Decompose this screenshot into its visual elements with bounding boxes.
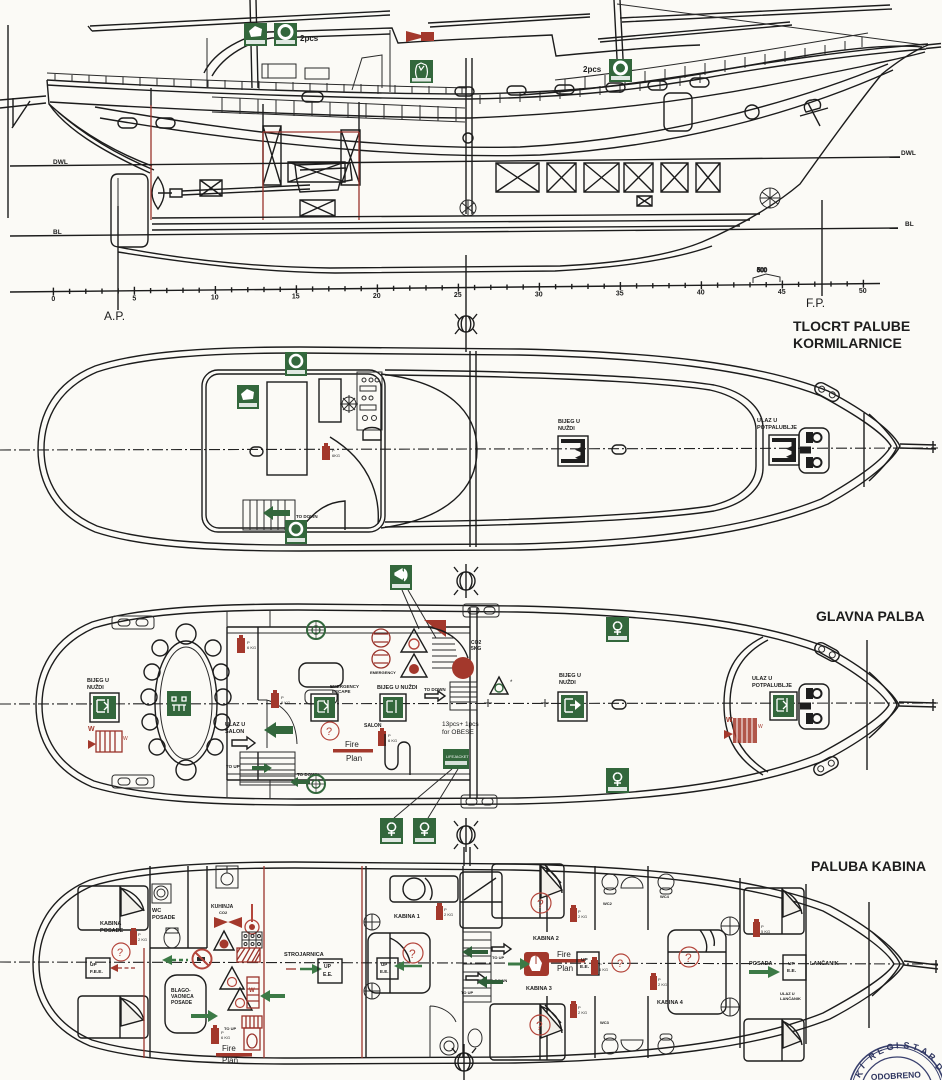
svg-text:SALON: SALON [364, 723, 382, 729]
svg-text:?: ? [537, 897, 544, 911]
svg-text:BL: BL [53, 229, 62, 236]
svg-text:EMERGENCY: EMERGENCY [370, 670, 396, 675]
svg-text:POSADE: POSADE [171, 1000, 193, 1006]
svg-text:TO UP: TO UP [224, 1026, 236, 1031]
svg-text:ODOBRENO: ODOBRENO [871, 1069, 922, 1080]
svg-text:W: W [88, 726, 95, 733]
svg-text:2 KG: 2 KG [658, 982, 667, 987]
svg-text:KABINA: KABINA [100, 921, 121, 927]
svg-text:2 KG: 2 KG [138, 937, 147, 942]
svg-text:BIJEG U: BIJEG U [87, 678, 109, 684]
svg-text:Plan: Plan [222, 1056, 238, 1065]
svg-text:TO DOWN: TO DOWN [424, 687, 446, 692]
svg-text:Fire: Fire [222, 1044, 236, 1053]
svg-text:50: 50 [859, 288, 867, 295]
svg-text:W: W [249, 988, 255, 994]
svg-text:W: W [758, 724, 763, 730]
svg-text:POSADE: POSADE [100, 928, 124, 934]
svg-text:40: 40 [697, 290, 705, 297]
svg-text:NUŽDI: NUŽDI [559, 678, 576, 686]
svg-text:35: 35 [616, 291, 624, 298]
svg-text:2 KG: 2 KG [578, 914, 587, 919]
svg-text:PALUBA KABINA: PALUBA KABINA [811, 858, 926, 874]
svg-text:45: 45 [778, 289, 786, 296]
svg-text:LANČANIK: LANČANIK [810, 960, 839, 967]
svg-text:6 KG: 6 KG [247, 645, 256, 650]
svg-text:for OBESE: for OBESE [442, 729, 474, 736]
svg-text:TLOCRT PALUBE: TLOCRT PALUBE [793, 318, 910, 334]
svg-text:6 KG: 6 KG [281, 700, 290, 705]
svg-text:30: 30 [535, 291, 543, 298]
svg-text:POSADE: POSADE [152, 915, 176, 921]
svg-text:500: 500 [757, 268, 768, 274]
svg-text:LIFEJACKET: LIFEJACKET [446, 755, 469, 759]
svg-text:ULAZ U: ULAZ U [752, 676, 772, 682]
svg-text:BIJEG U NUŽDI: BIJEG U NUŽDI [377, 683, 418, 691]
svg-text:6KG: 6KG [332, 453, 340, 458]
svg-text:5KG: 5KG [471, 646, 481, 652]
svg-text:Fire: Fire [345, 740, 359, 749]
svg-text:BL: BL [905, 221, 914, 228]
svg-text:NUŽDI: NUŽDI [558, 424, 575, 432]
svg-text:10: 10 [211, 295, 219, 302]
svg-text:2 KG: 2 KG [444, 912, 453, 917]
svg-text:POSADA: POSADA [749, 961, 773, 967]
svg-text:E.E.: E.E. [380, 969, 389, 974]
svg-text:E.E.: E.E. [580, 964, 589, 970]
svg-text:6 KG: 6 KG [221, 1035, 230, 1040]
svg-text:KABINA 2: KABINA 2 [533, 936, 559, 942]
svg-text:KABINA 3: KABINA 3 [526, 986, 552, 992]
svg-text:SALON: SALON [225, 729, 244, 735]
svg-text:POTPALUBLJE: POTPALUBLJE [752, 683, 792, 689]
svg-text:UP: UP [324, 964, 332, 970]
svg-text:WC: WC [152, 908, 161, 914]
svg-text:Fire: Fire [557, 950, 571, 959]
svg-text:F.P.: F.P. [806, 296, 825, 310]
svg-text:F.E.E.: F.E.E. [90, 969, 103, 975]
svg-text:POTPALUBLJE: POTPALUBLJE [757, 425, 797, 431]
svg-text:13pcs+ 1pcs: 13pcs+ 1pcs [442, 721, 479, 728]
svg-text:?: ? [117, 947, 123, 959]
svg-text:Plan: Plan [346, 754, 362, 763]
svg-text:UP: UP [381, 962, 387, 967]
svg-text:ULAZ U: ULAZ U [757, 418, 777, 424]
svg-text:DWL: DWL [53, 159, 68, 166]
svg-text:WC3: WC3 [600, 1020, 610, 1025]
svg-text:E.E.: E.E. [323, 972, 333, 978]
svg-text:KABINA 1: KABINA 1 [394, 914, 420, 920]
svg-text:NUŽDI: NUŽDI [87, 683, 104, 691]
svg-text:?: ? [409, 947, 416, 961]
svg-text:Plan: Plan [557, 964, 573, 973]
svg-text:UP: UP [581, 957, 588, 963]
svg-text:STROJARNICA: STROJARNICA [284, 952, 324, 958]
svg-text:TO UP: TO UP [492, 955, 504, 960]
svg-text:2pcs: 2pcs [300, 34, 319, 43]
svg-text:TO UP: TO UP [461, 990, 473, 995]
svg-text:E.E.: E.E. [787, 968, 796, 974]
svg-text:6 KG: 6 KG [599, 967, 608, 972]
svg-text:?: ? [617, 958, 623, 970]
svg-text:25: 25 [454, 292, 462, 299]
svg-text:LANČANIK: LANČANIK [780, 996, 801, 1001]
svg-text:?: ? [536, 1019, 543, 1033]
svg-text:WC4: WC4 [660, 894, 670, 899]
svg-text:W: W [726, 717, 733, 724]
svg-text:15: 15 [292, 294, 300, 301]
svg-text:2pcs: 2pcs [583, 65, 602, 74]
svg-text:UP: UP [788, 961, 795, 967]
svg-text:?: ? [685, 951, 692, 965]
svg-text:5 KG: 5 KG [761, 929, 770, 934]
svg-text:CO2: CO2 [219, 910, 228, 915]
svg-text:0: 0 [51, 296, 55, 303]
svg-text:ESCAPE: ESCAPE [332, 689, 351, 694]
svg-text:KORMILARNICE: KORMILARNICE [793, 335, 902, 351]
svg-text:TO UP: TO UP [226, 764, 240, 769]
svg-text:S: S [903, 1040, 910, 1051]
svg-text:A.P.: A.P. [104, 309, 125, 323]
svg-text:BIJEG U: BIJEG U [559, 673, 581, 679]
svg-text:GLAVNA PALBA: GLAVNA PALBA [816, 608, 925, 624]
svg-text:5: 5 [132, 295, 136, 302]
svg-text:WC2: WC2 [603, 901, 613, 906]
svg-text:UP: UP [90, 962, 97, 968]
svg-text:KABINA 4: KABINA 4 [657, 1000, 684, 1006]
svg-text:?: ? [326, 726, 332, 738]
svg-text:20: 20 [373, 293, 381, 300]
svg-text:2 KG: 2 KG [578, 1010, 587, 1015]
svg-text:DWL: DWL [901, 150, 916, 157]
svg-text:6 KG: 6 KG [388, 738, 397, 743]
svg-text:ULAZ U: ULAZ U [225, 722, 245, 728]
svg-text:BIJEG U: BIJEG U [558, 419, 580, 425]
svg-text:W: W [123, 736, 128, 742]
